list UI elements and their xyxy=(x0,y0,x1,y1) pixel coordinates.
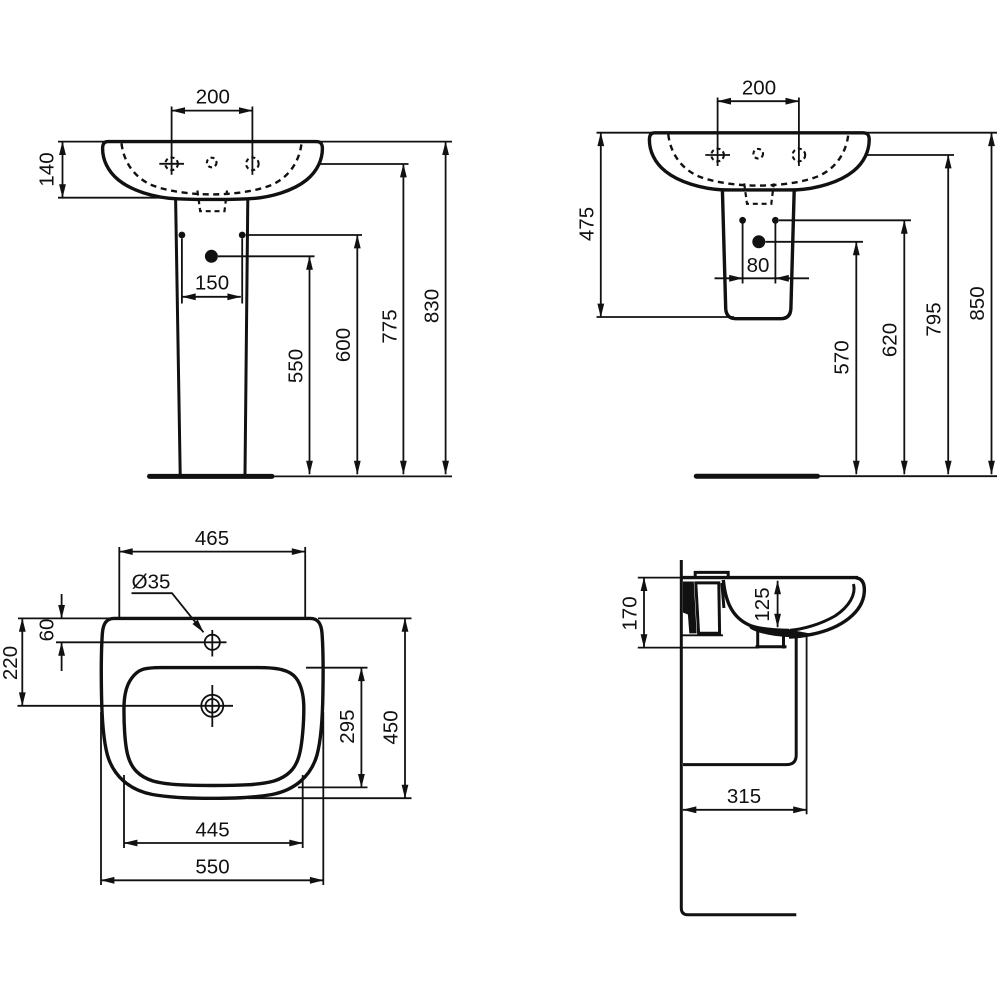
svg-text:600: 600 xyxy=(332,328,355,362)
svg-text:475: 475 xyxy=(576,207,599,241)
svg-text:295: 295 xyxy=(336,709,359,743)
svg-text:315: 315 xyxy=(727,785,761,808)
svg-text:Ø35: Ø35 xyxy=(132,571,171,594)
svg-text:60: 60 xyxy=(36,619,59,642)
svg-text:775: 775 xyxy=(379,309,402,343)
svg-text:830: 830 xyxy=(421,289,444,323)
svg-text:170: 170 xyxy=(619,596,642,630)
svg-text:150: 150 xyxy=(195,272,229,295)
svg-text:550: 550 xyxy=(285,349,308,383)
svg-text:445: 445 xyxy=(195,818,229,841)
svg-text:200: 200 xyxy=(742,76,776,99)
svg-text:850: 850 xyxy=(966,286,989,320)
svg-text:140: 140 xyxy=(36,152,59,186)
svg-text:80: 80 xyxy=(747,254,770,277)
svg-text:570: 570 xyxy=(831,340,854,374)
svg-text:620: 620 xyxy=(879,323,902,357)
svg-text:450: 450 xyxy=(380,710,403,744)
svg-text:795: 795 xyxy=(923,302,946,336)
svg-text:125: 125 xyxy=(751,587,774,621)
svg-text:465: 465 xyxy=(195,527,229,550)
svg-text:550: 550 xyxy=(195,856,229,879)
svg-text:220: 220 xyxy=(0,646,22,680)
svg-text:200: 200 xyxy=(196,86,230,109)
